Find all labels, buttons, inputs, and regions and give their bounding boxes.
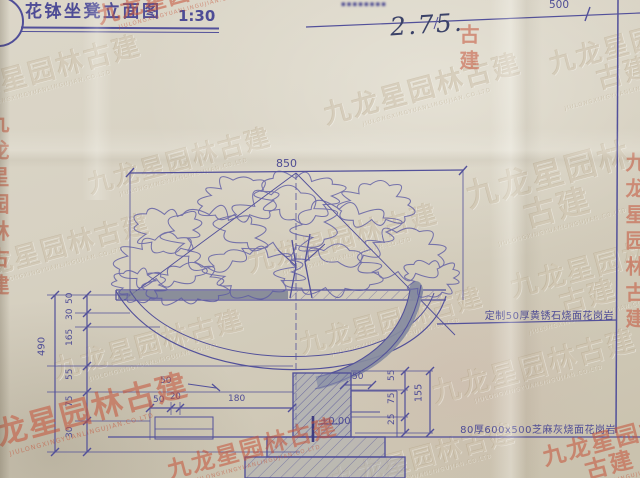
scanned-drawing-page: 九龙星园林古建JIULONGXINGYUANLINGUJIAN.CO.LTD 九… (0, 0, 640, 478)
dim-overhang-left-50: 50 (160, 377, 171, 386)
dim-bottom-180: 180 (228, 395, 245, 404)
material-note-seat: 定制50厚黄锈石烧面花岗岩 (434, 307, 614, 322)
drawing-lines (21, 0, 640, 478)
dim-overhang-right-50: 50 (352, 373, 363, 382)
dim-bottom-20: 20 (170, 393, 181, 402)
handwritten-note: 2.75. (389, 7, 464, 41)
dim-850: 850 (276, 158, 297, 169)
drawing-scale: 1:30 (178, 9, 215, 24)
dim-bottom-50: 50 (153, 396, 164, 405)
tree-foliage-scribble (111, 171, 459, 305)
level-label: ±0.00 (320, 417, 351, 427)
dim-top-right-500: 500 (549, 0, 569, 11)
illegible-annotation: ▪▪▪▪▪▪▪▪ (341, 0, 387, 8)
elevation-drawing (0, 0, 640, 478)
material-note-base: 80厚600x500芝麻灰烧面花岗岩 (448, 421, 616, 436)
page-title: 花钵坐凳立面图 (25, 4, 162, 21)
